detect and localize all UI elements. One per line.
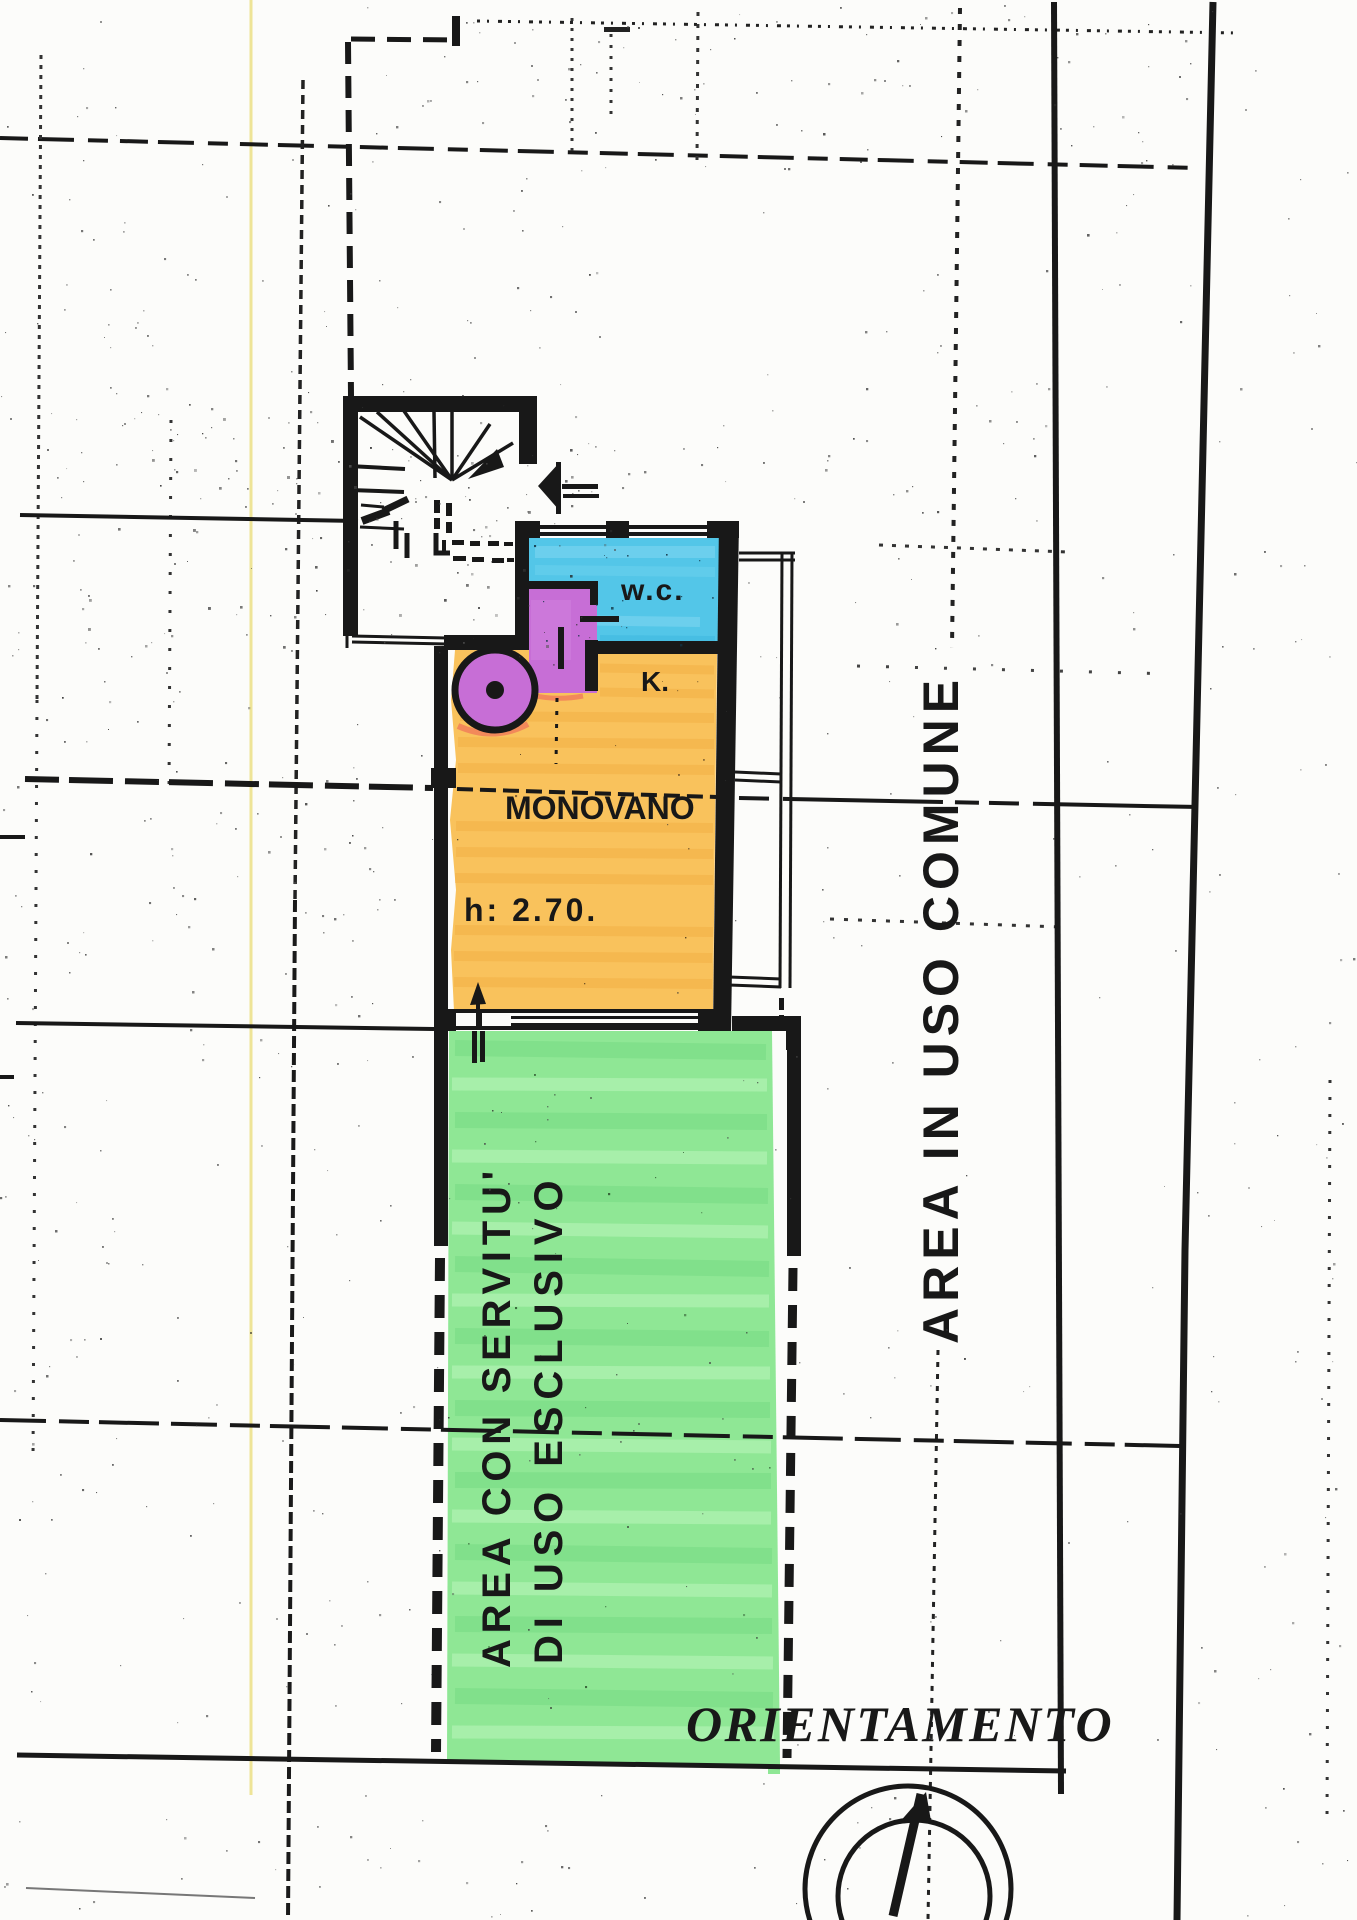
svg-text:DI USO ESCLUSIVO: DI USO ESCLUSIVO — [527, 1174, 571, 1664]
svg-text:K.: K. — [641, 666, 669, 697]
svg-text:MONOVANO: MONOVANO — [505, 790, 695, 826]
svg-text:h: 2.70.: h: 2.70. — [464, 892, 598, 928]
svg-text:AREA IN USO COMUNE: AREA IN USO COMUNE — [913, 674, 969, 1344]
svg-text:ORIENTAMENTO: ORIENTAMENTO — [686, 1696, 1114, 1752]
svg-text:w.c.: w.c. — [620, 574, 685, 607]
svg-text:AREA CON SERVITU': AREA CON SERVITU' — [475, 1165, 519, 1668]
